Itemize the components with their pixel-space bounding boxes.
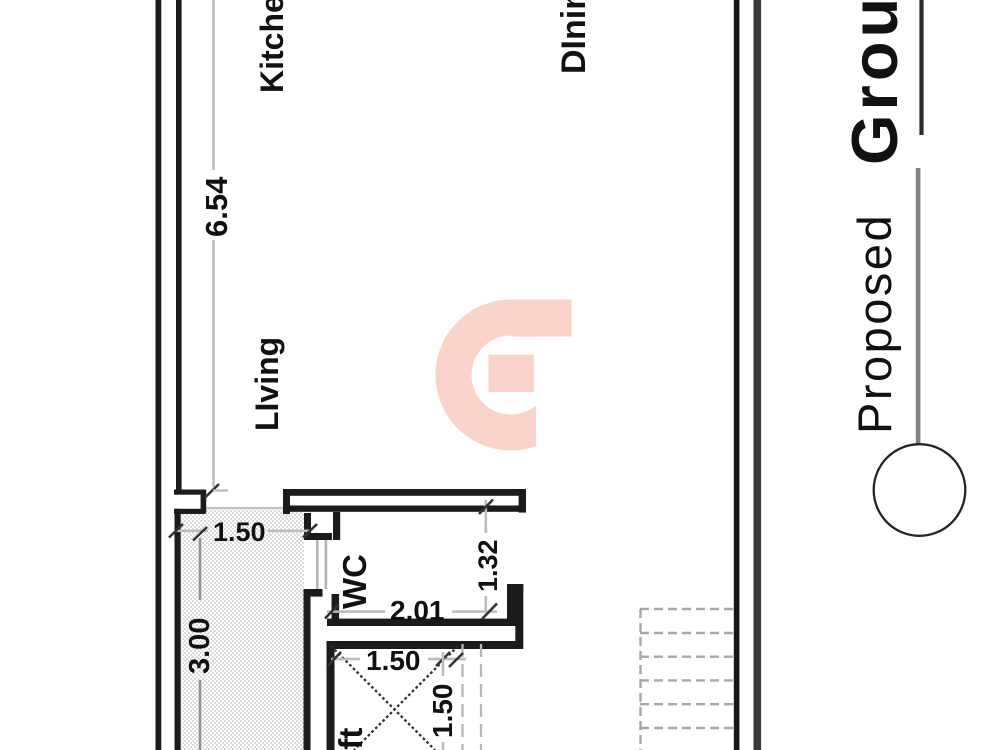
svg-text:DIning: DIning [555, 0, 593, 74]
svg-text:Lift: Lift [332, 728, 369, 750]
svg-text:1.50: 1.50 [427, 684, 458, 739]
svg-text:1.32: 1.32 [473, 539, 503, 592]
svg-text:Kitchen: Kitchen [254, 0, 290, 93]
svg-text:2.01: 2.01 [390, 595, 445, 626]
svg-text:6.54: 6.54 [199, 176, 234, 237]
svg-text:Ground Floor: Ground Floor [838, 0, 911, 165]
svg-text:3.00: 3.00 [184, 618, 216, 674]
svg-text:LIving: LIving [249, 337, 285, 431]
svg-text:Proposed: Proposed [848, 213, 901, 434]
svg-text:1.50: 1.50 [366, 645, 421, 676]
svg-text:1.50: 1.50 [213, 517, 266, 547]
svg-text:WC: WC [336, 554, 373, 609]
